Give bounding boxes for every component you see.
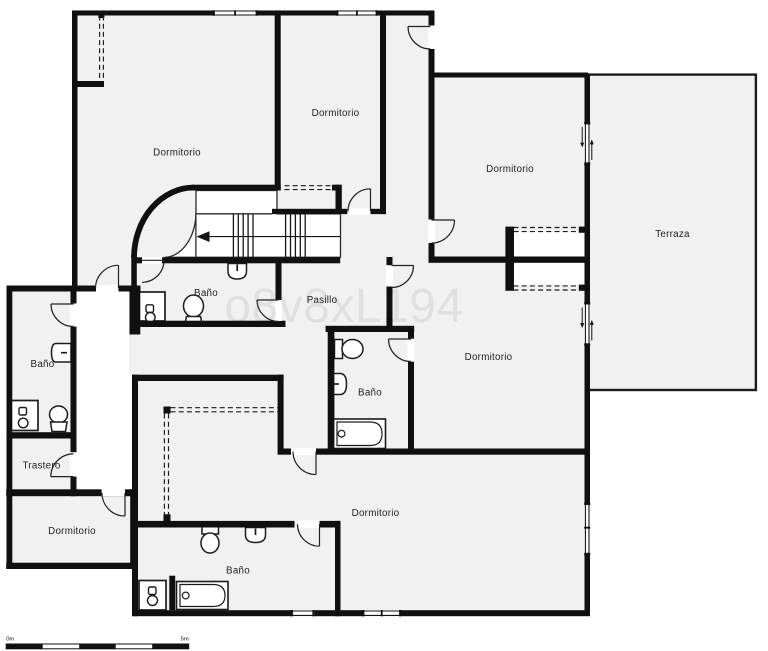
svg-text:Trastero: Trastero	[22, 461, 60, 472]
svg-text:Dormitorio: Dormitorio	[48, 526, 96, 537]
svg-text:Terraza: Terraza	[655, 229, 690, 240]
svg-text:Baño: Baño	[194, 288, 218, 299]
svg-text:Dormitorio: Dormitorio	[352, 508, 400, 519]
svg-text:Dormitorio: Dormitorio	[153, 148, 201, 159]
svg-text:Dormitorio: Dormitorio	[312, 108, 360, 119]
svg-text:Baño: Baño	[358, 388, 382, 399]
svg-text:o8v8xL194: o8v8xL194	[224, 280, 463, 333]
svg-text:Baño: Baño	[31, 359, 55, 370]
svg-text:0m: 0m	[6, 637, 14, 643]
svg-text:Dormitorio: Dormitorio	[486, 164, 534, 175]
svg-text:5m: 5m	[181, 637, 189, 643]
svg-text:Baño: Baño	[226, 566, 250, 577]
svg-text:Dormitorio: Dormitorio	[465, 352, 513, 363]
